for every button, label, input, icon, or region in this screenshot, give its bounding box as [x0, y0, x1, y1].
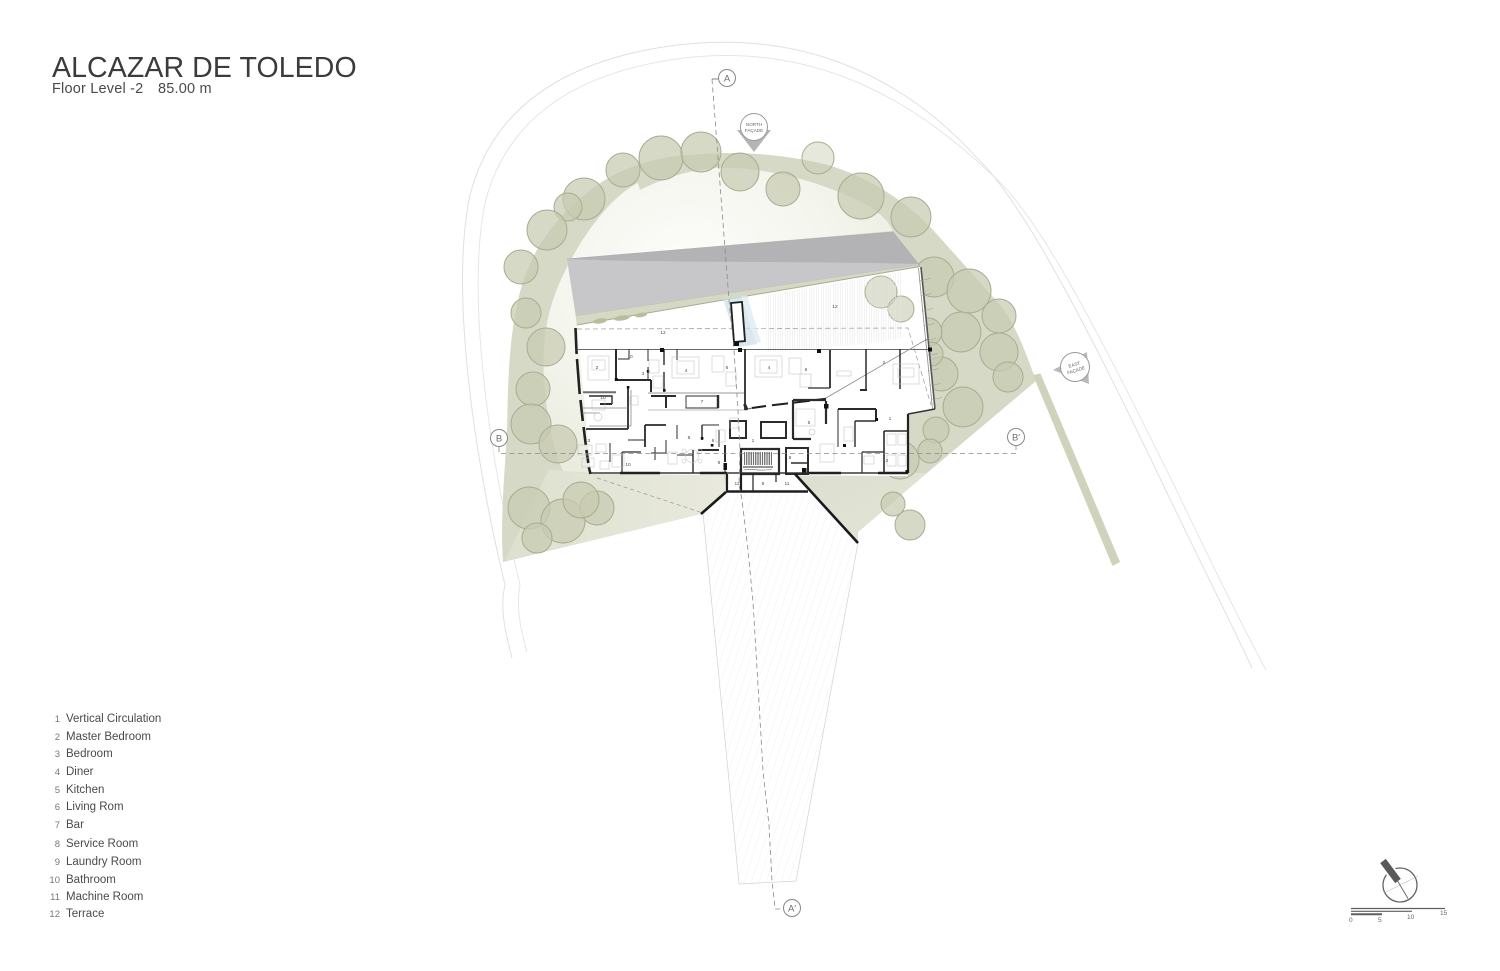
svg-text:Living Rom: Living Rom [66, 801, 124, 813]
svg-text:A: A [724, 74, 731, 85]
svg-text:6: 6 [726, 365, 729, 371]
svg-text:Bedroom: Bedroom [66, 748, 113, 760]
svg-text:9: 9 [789, 455, 792, 461]
svg-text:1: 1 [889, 416, 892, 422]
svg-text:11: 11 [50, 892, 60, 903]
svg-text:7: 7 [55, 820, 60, 831]
svg-text:2: 2 [883, 360, 886, 366]
svg-text:9: 9 [712, 438, 715, 444]
svg-text:Floor Level -2: Floor Level -2 [52, 81, 143, 97]
svg-text:8: 8 [55, 839, 60, 850]
svg-text:NORTH: NORTH [746, 122, 762, 127]
svg-text:8: 8 [718, 460, 721, 466]
svg-text:4: 4 [55, 767, 60, 778]
svg-text:4: 4 [685, 368, 688, 374]
svg-text:Terrace: Terrace [66, 908, 104, 920]
svg-text:FAÇADE: FAÇADE [745, 128, 763, 133]
svg-text:1: 1 [55, 714, 60, 725]
svg-text:11: 11 [785, 481, 790, 487]
svg-text:12: 12 [832, 304, 838, 310]
svg-text:2: 2 [55, 732, 60, 743]
svg-text:5: 5 [1378, 917, 1382, 924]
svg-text:3: 3 [55, 749, 60, 760]
svg-text:10: 10 [627, 354, 633, 360]
svg-text:9: 9 [55, 857, 60, 868]
svg-text:0: 0 [1349, 917, 1353, 924]
svg-text:15: 15 [1440, 910, 1448, 917]
svg-text:Kitchen: Kitchen [66, 784, 104, 796]
svg-text:Bar: Bar [66, 819, 84, 831]
svg-text:Bathroom: Bathroom [66, 874, 116, 886]
svg-text:6: 6 [55, 802, 60, 813]
svg-text:12: 12 [49, 909, 60, 920]
svg-text:Vertical Circulation: Vertical Circulation [66, 713, 161, 725]
svg-text:12: 12 [660, 330, 666, 336]
svg-text:10: 10 [600, 395, 606, 401]
svg-text:10: 10 [49, 875, 60, 886]
svg-text:ALCAZAR DE TOLEDO: ALCAZAR DE TOLEDO [52, 52, 357, 84]
svg-text:A′: A′ [788, 904, 796, 915]
svg-text:Laundry Room: Laundry Room [66, 856, 141, 868]
svg-text:2: 2 [886, 458, 889, 464]
svg-text:3: 3 [588, 438, 591, 444]
svg-text:Machine Room: Machine Room [66, 891, 143, 903]
svg-text:10: 10 [1407, 914, 1415, 921]
svg-text:3: 3 [642, 371, 645, 377]
svg-text:85.00 m: 85.00 m [158, 81, 212, 97]
svg-text:6: 6 [805, 367, 808, 373]
svg-text:4: 4 [768, 365, 771, 371]
svg-text:5: 5 [55, 785, 60, 796]
svg-text:Master Bedroom: Master Bedroom [66, 731, 151, 743]
svg-text:7: 7 [701, 399, 704, 405]
svg-text:10: 10 [625, 462, 631, 468]
svg-text:Diner: Diner [66, 766, 94, 778]
svg-text:B′: B′ [1012, 433, 1020, 444]
svg-text:5: 5 [808, 420, 811, 426]
svg-text:2: 2 [596, 365, 599, 371]
svg-text:1: 1 [752, 438, 755, 444]
svg-text:9: 9 [762, 481, 765, 487]
svg-text:Service Room: Service Room [66, 838, 138, 850]
svg-text:B: B [496, 434, 502, 445]
svg-text:8: 8 [688, 435, 691, 441]
